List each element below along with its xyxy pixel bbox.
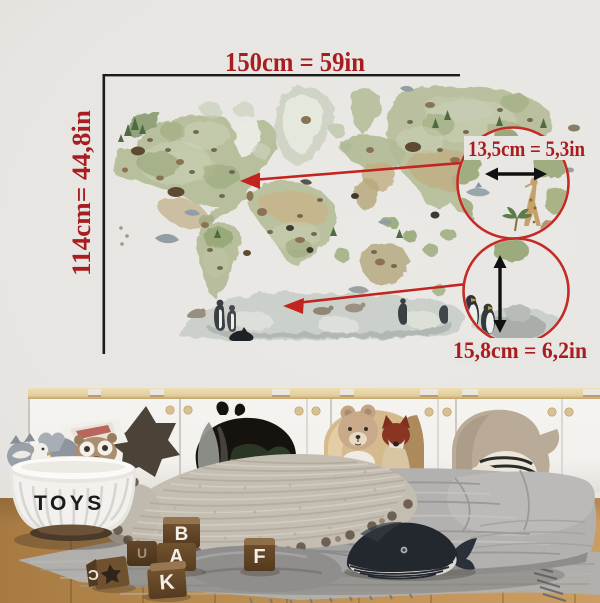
svg-text:Ɔ: Ɔ <box>88 567 99 584</box>
svg-text:150cm = 59in: 150cm = 59in <box>225 47 365 77</box>
svg-text:13,5cm = 5,3in: 13,5cm = 5,3in <box>468 136 585 161</box>
svg-text:TOYS: TOYS <box>34 492 105 515</box>
svg-text:15,8cm = 6,2in: 15,8cm = 6,2in <box>453 338 587 363</box>
svg-text:114cm= 44,8in: 114cm= 44,8in <box>67 109 96 276</box>
